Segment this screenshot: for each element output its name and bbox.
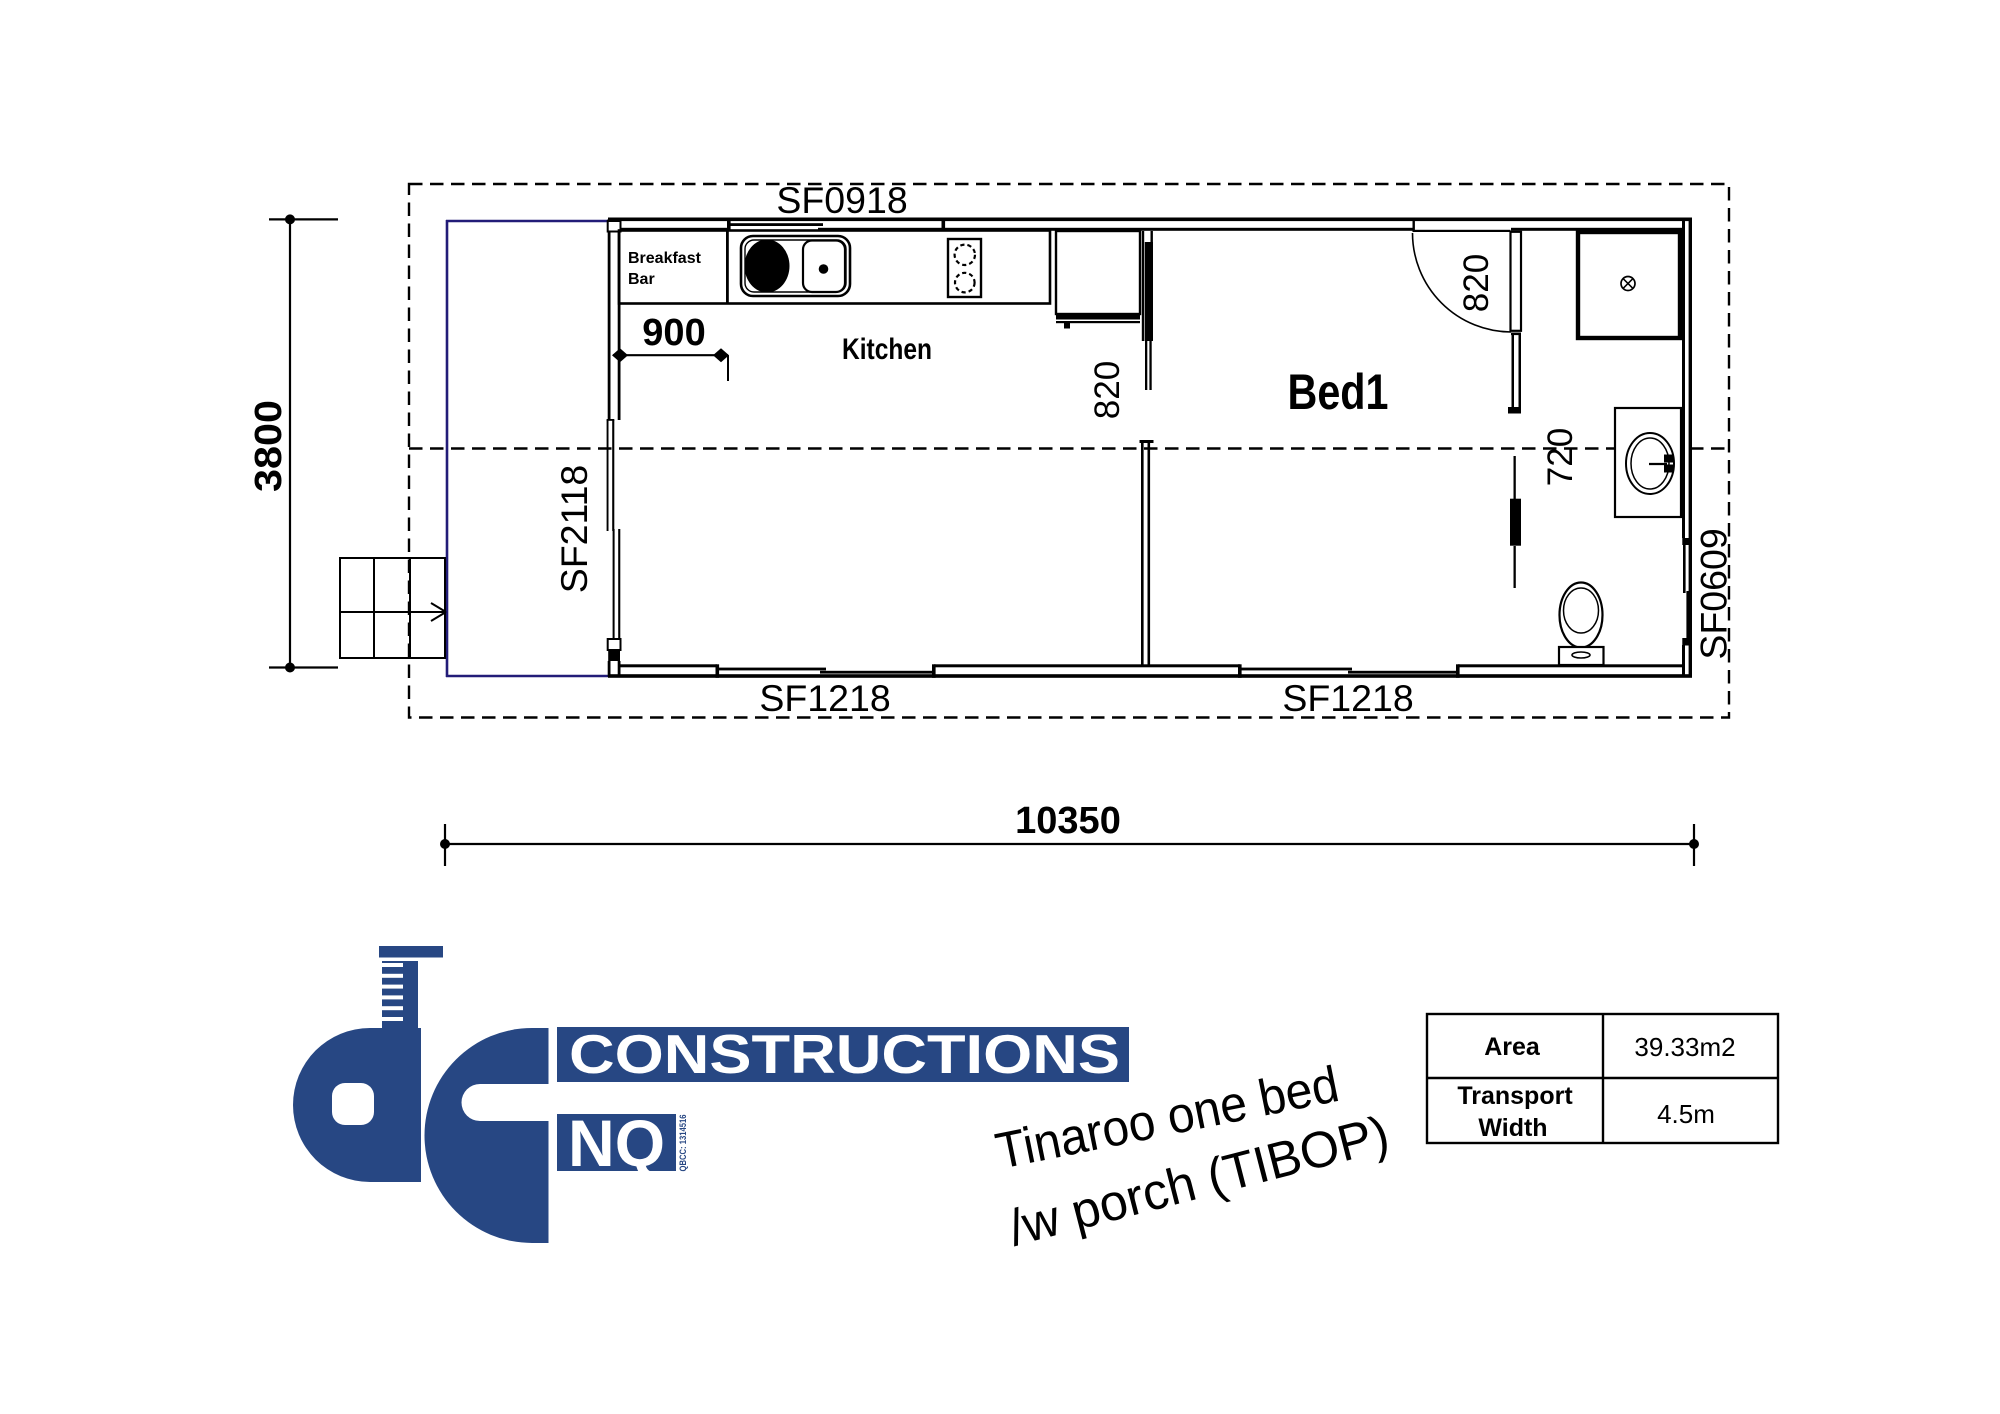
- svg-text:820: 820: [1457, 254, 1496, 312]
- svg-text:SF0918: SF0918: [776, 179, 907, 221]
- svg-text:720: 720: [1541, 428, 1580, 486]
- svg-text:Kitchen: Kitchen: [842, 333, 932, 366]
- svg-text:10350: 10350: [1015, 800, 1121, 842]
- svg-text:QBCC: 1314516: QBCC: 1314516: [678, 1115, 689, 1172]
- svg-text:820: 820: [1088, 361, 1127, 419]
- svg-text:Area: Area: [1484, 1033, 1541, 1061]
- svg-text:4.5m: 4.5m: [1657, 1099, 1715, 1129]
- svg-text:SF2118: SF2118: [553, 465, 595, 594]
- svg-text:Transport: Transport: [1457, 1082, 1573, 1110]
- svg-text:SF1218: SF1218: [1282, 677, 1413, 719]
- svg-text:Bar: Bar: [628, 271, 655, 288]
- svg-text:CONSTRUCTIONS: CONSTRUCTIONS: [569, 1023, 1120, 1085]
- svg-text:Width: Width: [1478, 1114, 1547, 1142]
- svg-text:SF1218: SF1218: [759, 677, 890, 719]
- svg-text:Bed1: Bed1: [1288, 364, 1389, 420]
- svg-text:NQ: NQ: [568, 1106, 665, 1180]
- svg-text:39.33m2: 39.33m2: [1634, 1032, 1735, 1062]
- svg-text:900: 900: [642, 312, 705, 354]
- svg-text:3800: 3800: [248, 400, 290, 492]
- svg-text:Breakfast: Breakfast: [628, 250, 702, 267]
- svg-text:SF0609: SF0609: [1693, 528, 1735, 659]
